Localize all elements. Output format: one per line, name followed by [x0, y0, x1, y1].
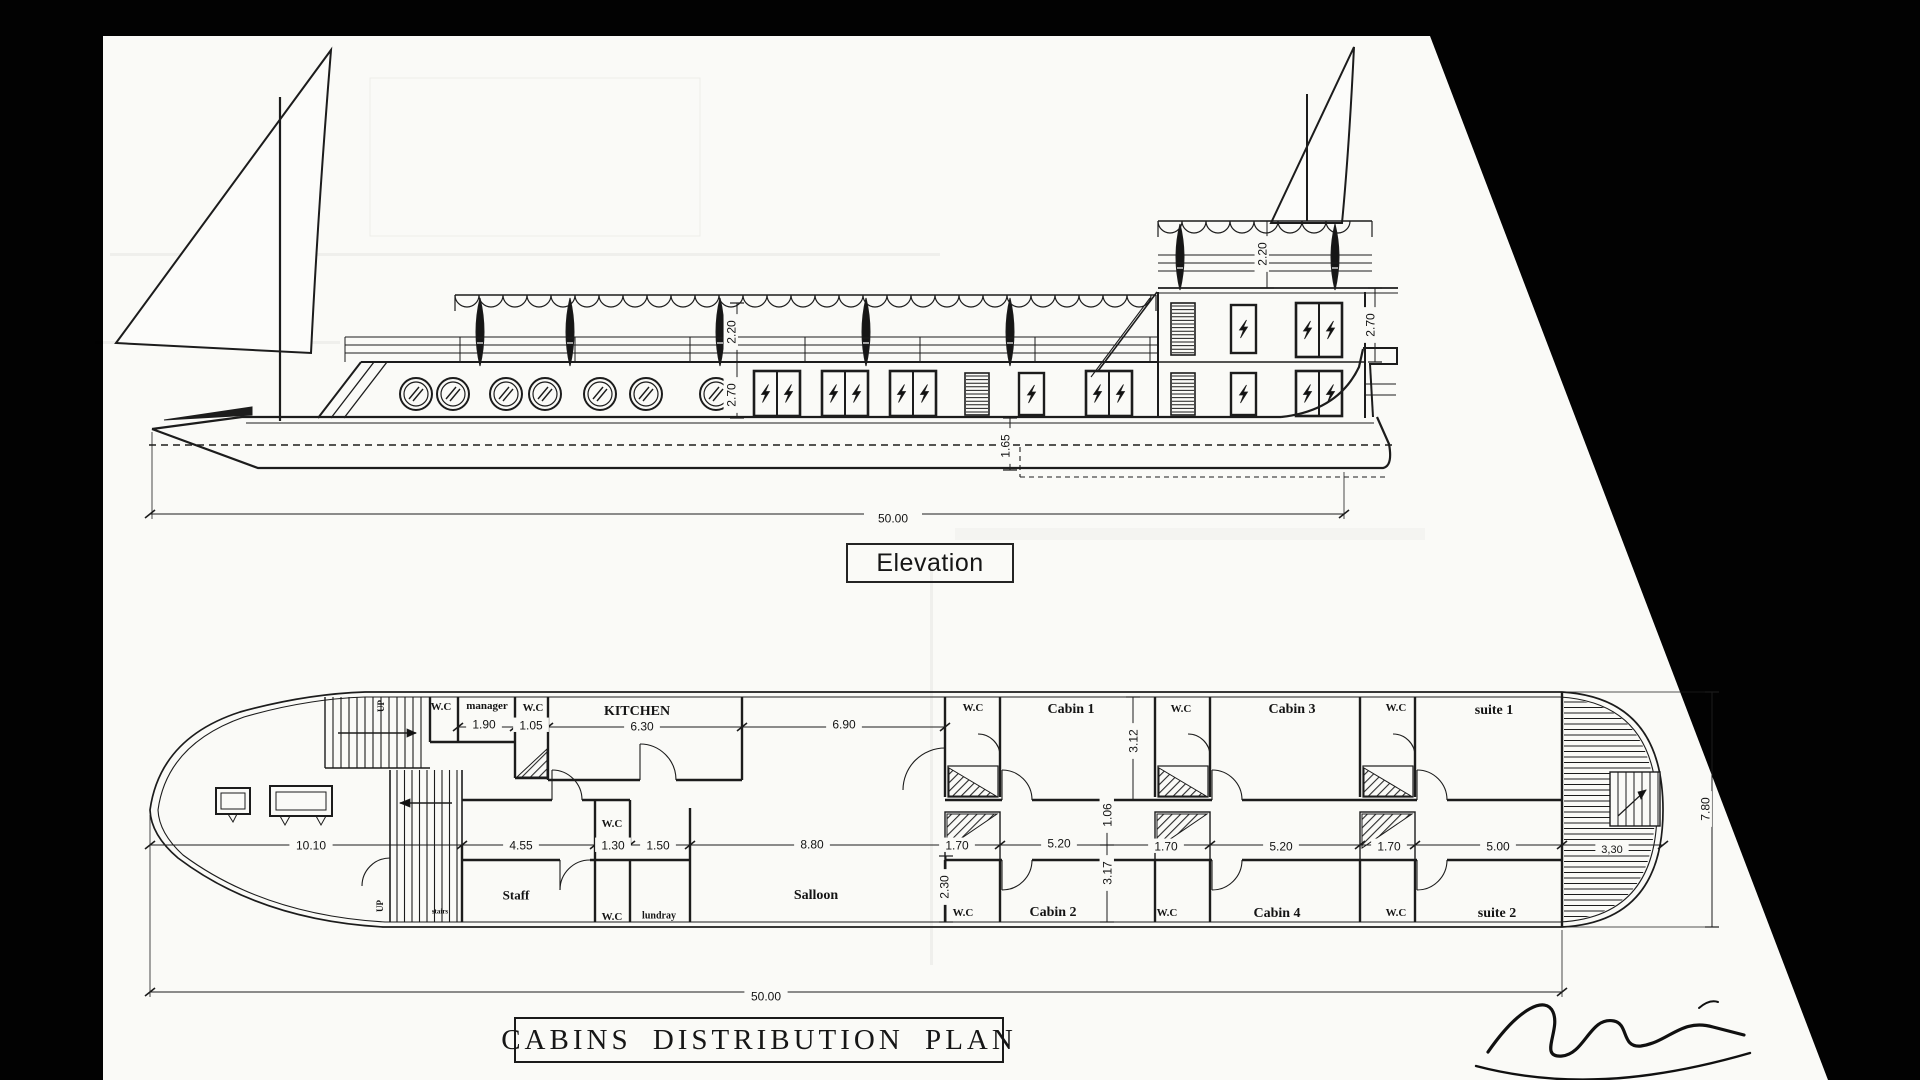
room-label: manager: [466, 700, 508, 712]
svg-text:Salloon: Salloon: [794, 888, 839, 903]
svg-text:W.C: W.C: [1386, 702, 1407, 714]
room-label: stairs: [432, 908, 449, 916]
room-label: Cabin 2: [1029, 905, 1076, 920]
dimension-label: 6.90: [826, 717, 862, 732]
svg-text:1.70: 1.70: [1377, 839, 1401, 853]
dimension-label: 1.65: [998, 428, 1013, 464]
room-label: W.C: [1171, 703, 1192, 715]
room-label: lundray: [642, 911, 676, 922]
svg-text:10.10: 10.10: [296, 838, 326, 852]
svg-text:Staff: Staff: [503, 888, 530, 903]
room-label: KITCHEN: [604, 704, 670, 719]
room-label: W.C: [963, 702, 984, 714]
room-label: W.C: [1157, 907, 1178, 919]
dimension-label: 2.30: [937, 869, 952, 905]
dimension-label: 2.70: [724, 377, 739, 413]
svg-text:Cabin 3: Cabin 3: [1268, 702, 1315, 717]
room-label: W.C: [523, 702, 544, 714]
svg-text:3.12: 3.12: [1126, 729, 1140, 753]
dimension-label: 2.20: [1255, 236, 1270, 272]
svg-text:W.C: W.C: [523, 702, 544, 714]
room-label: Salloon: [794, 888, 839, 903]
dimension-label: 4.55: [503, 838, 539, 853]
dimension-label: 6.30: [624, 719, 660, 734]
svg-text:3.17: 3.17: [1100, 861, 1114, 885]
dimension-label: 5.20: [1041, 836, 1077, 851]
dimension-label: 1.30: [595, 838, 631, 853]
room-label: UP: [376, 700, 386, 712]
svg-text:5.20: 5.20: [1047, 836, 1071, 850]
boat-drawing: 2.202.702.202.701.6550.001.901.056.306.9…: [0, 0, 1920, 1080]
scanned-sheet: 2.202.702.202.701.6550.001.901.056.306.9…: [0, 0, 1920, 1080]
svg-text:W.C: W.C: [602, 818, 623, 830]
svg-text:1.06: 1.06: [1100, 803, 1114, 827]
dimension-label: 2.20: [724, 314, 739, 350]
dimension-label: 1.70: [939, 838, 975, 853]
dimension-label: 3.12: [1126, 723, 1141, 759]
svg-text:6.90: 6.90: [832, 717, 856, 731]
svg-text:2.30: 2.30: [937, 875, 951, 899]
dimension-label: 1.05: [513, 718, 549, 733]
svg-text:2.70: 2.70: [1363, 313, 1377, 337]
svg-text:W.C: W.C: [1157, 907, 1178, 919]
svg-text:7.80: 7.80: [1698, 797, 1712, 821]
svg-text:W.C: W.C: [953, 907, 974, 919]
svg-text:1.05: 1.05: [519, 718, 543, 732]
svg-text:1.50: 1.50: [646, 838, 670, 852]
svg-text:W.C: W.C: [602, 911, 623, 923]
svg-text:W.C: W.C: [1386, 907, 1407, 919]
dimension-label: 1.70: [1148, 839, 1184, 854]
room-label: suite 2: [1478, 906, 1517, 921]
svg-text:1.65: 1.65: [998, 434, 1012, 458]
svg-text:suite 2: suite 2: [1478, 906, 1517, 921]
svg-text:8.80: 8.80: [800, 837, 824, 851]
svg-text:1.30: 1.30: [601, 838, 625, 852]
svg-text:6.30: 6.30: [630, 719, 654, 733]
svg-text:3,30: 3,30: [1601, 844, 1622, 856]
dimension-label: 1.90: [466, 717, 502, 732]
svg-text:manager: manager: [466, 700, 508, 712]
plan-title: CABINS DISTRIBUTION PLAN: [514, 1017, 1004, 1063]
signature: [1476, 1001, 1750, 1079]
dimension-label: 2.70: [1363, 307, 1378, 343]
svg-text:2.70: 2.70: [724, 383, 738, 407]
svg-text:5.20: 5.20: [1269, 839, 1293, 853]
room-label: W.C: [953, 907, 974, 919]
svg-text:5.00: 5.00: [1486, 839, 1510, 853]
svg-text:W.C: W.C: [431, 701, 452, 713]
svg-text:suite 1: suite 1: [1475, 703, 1514, 718]
svg-text:2.20: 2.20: [724, 320, 738, 344]
room-label: UP: [375, 900, 385, 912]
svg-text:1.70: 1.70: [945, 838, 969, 852]
svg-text:UP: UP: [376, 700, 386, 712]
room-label: W.C: [1386, 907, 1407, 919]
dimension-label: 5.20: [1263, 839, 1299, 854]
svg-text:Cabin 4: Cabin 4: [1253, 906, 1300, 921]
svg-text:50.00: 50.00: [751, 989, 781, 1003]
svg-text:Cabin 2: Cabin 2: [1029, 905, 1076, 920]
dimension-label: 50.00: [744, 989, 787, 1004]
svg-text:stairs: stairs: [432, 908, 449, 916]
room-label: W.C: [1386, 702, 1407, 714]
dimension-label: 3,30: [1595, 842, 1628, 856]
room-label: Staff: [503, 888, 530, 903]
dimension-label: 7.80: [1698, 791, 1713, 827]
svg-text:lundray: lundray: [642, 911, 676, 922]
room-label: Cabin 4: [1253, 906, 1300, 921]
dimension-label: 1.70: [1371, 839, 1407, 854]
dimension-label: 50.00: [871, 511, 914, 526]
dimension-label: 3.17: [1100, 855, 1115, 891]
room-label: Cabin 3: [1268, 702, 1315, 717]
svg-text:Cabin 1: Cabin 1: [1047, 702, 1094, 717]
svg-text:4.55: 4.55: [509, 838, 533, 852]
svg-text:W.C: W.C: [963, 702, 984, 714]
svg-text:1.90: 1.90: [472, 717, 496, 731]
elevation-view: [116, 47, 1398, 519]
dimension-label: 1.06: [1100, 797, 1115, 833]
svg-text:KITCHEN: KITCHEN: [604, 704, 670, 719]
dimension-label: 5.00: [1480, 839, 1516, 854]
dimension-label: 8.80: [794, 837, 830, 852]
svg-text:50.00: 50.00: [878, 511, 908, 525]
dimension-label: 10.10: [289, 838, 332, 853]
room-label: W.C: [602, 818, 623, 830]
dimension-label: 1.50: [640, 838, 676, 853]
svg-text:UP: UP: [375, 900, 385, 912]
room-label: W.C: [602, 911, 623, 923]
svg-text:W.C: W.C: [1171, 703, 1192, 715]
room-label: suite 1: [1475, 703, 1514, 718]
svg-text:1.70: 1.70: [1154, 839, 1178, 853]
elevation-title: Elevation: [846, 543, 1014, 583]
room-label: W.C: [431, 701, 452, 713]
svg-text:2.20: 2.20: [1255, 242, 1269, 266]
room-label: Cabin 1: [1047, 702, 1094, 717]
